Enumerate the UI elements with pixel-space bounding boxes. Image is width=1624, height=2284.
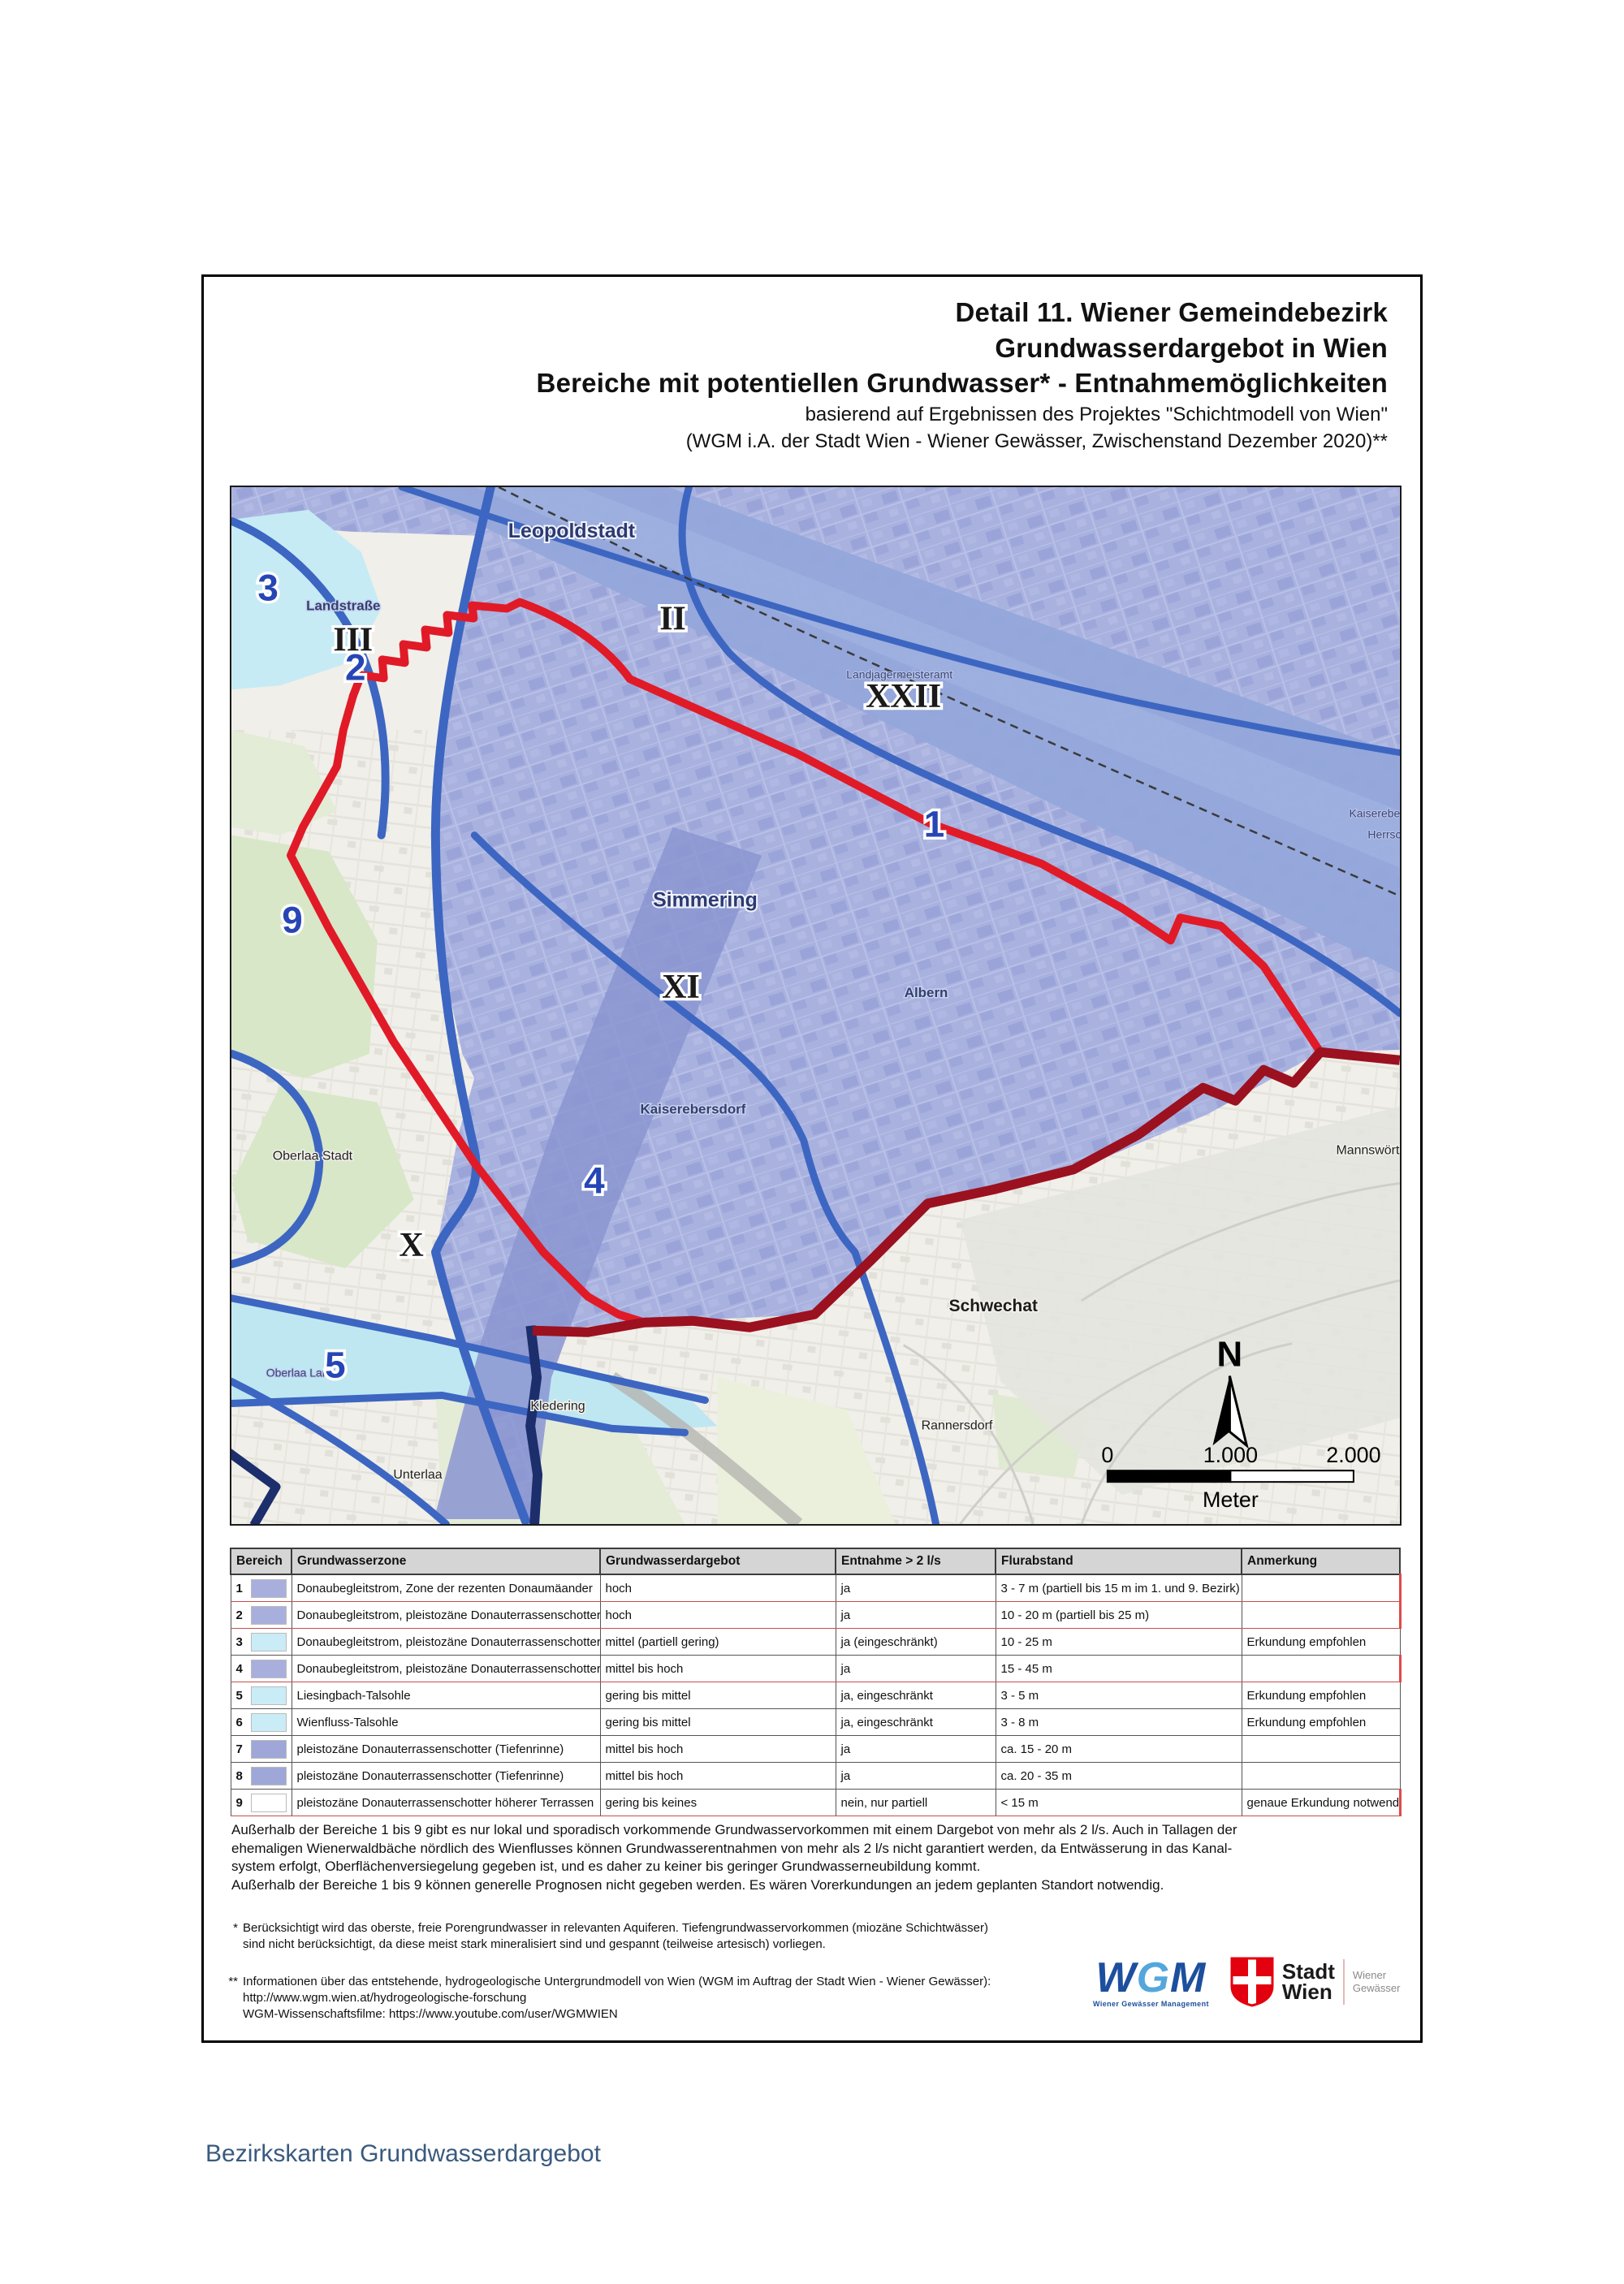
cell-grundwasserdargebot: hoch — [600, 1602, 836, 1629]
zone-number: 2 — [236, 1608, 245, 1622]
map-zone-number-1: 1 — [924, 803, 945, 845]
zone-number: 5 — [236, 1689, 245, 1703]
subtitle-line-1: basierend auf Ergebnissen des Projektes … — [316, 401, 1388, 429]
cell-entnahme: ja — [836, 1763, 996, 1790]
map-label-leopoldstadt: Leopoldstadt — [508, 520, 635, 542]
cell-anmerkung — [1242, 1656, 1400, 1682]
cell-entnahme: ja — [836, 1574, 996, 1602]
zone-color-swatch — [251, 1686, 286, 1705]
wgm-letter-m: M — [1170, 1954, 1206, 2001]
cell-flurabstand: 3 - 8 m — [996, 1709, 1242, 1736]
map-label-kaiserebersdorf: Kaiserebersdorf — [641, 1102, 746, 1117]
cell-bereich: 4 — [231, 1656, 292, 1682]
col-header-entnahme: Entnahme > 2 l/s — [836, 1548, 996, 1574]
map-label-unterlaa: Unterlaa — [393, 1468, 442, 1482]
cell-bereich: 1 — [231, 1574, 292, 1602]
cell-grundwasserzone: Donaubegleitstrom, Zone der rezenten Don… — [292, 1574, 600, 1602]
col-header-flurabstand: Flurabstand — [996, 1548, 1242, 1574]
cell-grundwasserzone: pleistozäne Donauterrassenschotter (Tief… — [292, 1736, 600, 1763]
cell-entnahme: nein, nur partiell — [836, 1790, 996, 1816]
zone-color-swatch — [251, 1633, 286, 1651]
cell-anmerkung: Erkundung empfohlen — [1242, 1709, 1400, 1736]
map-zone-number-9: 9 — [282, 898, 303, 940]
stadt-wien-line2: Wien — [1282, 1982, 1335, 2002]
title-line-3: Bereiche mit potentiellen Grundwasser* -… — [316, 365, 1388, 401]
table-row: 5 Liesingbach-Talsohle gering bis mittel… — [231, 1682, 1400, 1709]
cell-anmerkung — [1242, 1763, 1400, 1790]
cell-grundwasserzone: Donaubegleitstrom, pleistozäne Donauterr… — [292, 1656, 600, 1682]
wgm-letter-g: G — [1137, 1954, 1170, 2001]
map-label-oberlaa-stadt: Oberlaa Stadt — [273, 1149, 353, 1163]
cell-flurabstand: 10 - 25 m — [996, 1629, 1242, 1656]
cell-entnahme: ja — [836, 1602, 996, 1629]
cell-bereich: 5 — [231, 1682, 292, 1709]
zone-number: 4 — [236, 1662, 245, 1676]
zone-number: 3 — [236, 1635, 245, 1649]
cell-bereich: 7 — [231, 1736, 292, 1763]
cell-grundwasserzone: pleistozäne Donauterrassenschotter (Tief… — [292, 1763, 600, 1790]
zone-color-swatch — [251, 1606, 286, 1625]
body-note: Außerhalb der Bereiche 1 bis 9 gibt es n… — [231, 1821, 1394, 1894]
scale-tick-2000: 2.000 — [1326, 1443, 1380, 1467]
title-block: Detail 11. Wiener Gemeindebezirk Grundwa… — [316, 295, 1388, 456]
groundwater-zone-table: Bereich Grundwasserzone Grundwasserdarge… — [230, 1548, 1402, 1816]
footnote-1-mark: * — [217, 1920, 238, 1953]
table-row: 1 Donaubegleitstrom, Zone der rezenten D… — [231, 1574, 1400, 1602]
zone-number: 7 — [236, 1742, 245, 1756]
cell-flurabstand: 10 - 20 m (partiell bis 25 m) — [996, 1602, 1242, 1629]
north-label: N — [1217, 1335, 1243, 1375]
cell-flurabstand: ca. 15 - 20 m — [996, 1736, 1242, 1763]
col-header-grundwasserzone: Grundwasserzone — [292, 1548, 600, 1574]
cell-entnahme: ja (eingeschränkt) — [836, 1629, 996, 1656]
map-label-district-XI: XI — [662, 969, 700, 1006]
page-caption: Bezirkskarten Grundwasserdargebot — [205, 2140, 601, 2168]
footnote-1: * Berücksichtigt wird das oberste, freie… — [217, 1920, 1069, 1953]
map: Leopoldstadt Landstraße Simmering Albern… — [230, 486, 1402, 1526]
cell-grundwasserdargebot: mittel bis hoch — [600, 1763, 836, 1790]
cell-anmerkung — [1242, 1574, 1400, 1602]
map-zone-number-2: 2 — [345, 645, 366, 688]
cell-grundwasserdargebot: gering bis mittel — [600, 1682, 836, 1709]
zone-color-swatch — [251, 1740, 286, 1759]
scale-tick-1000: 1.000 — [1203, 1443, 1258, 1467]
cell-entnahme: ja, eingeschränkt — [836, 1709, 996, 1736]
map-label-landstrasse: Landstraße — [306, 598, 380, 614]
cell-grundwasserdargebot: mittel bis hoch — [600, 1736, 836, 1763]
zone-color-swatch — [251, 1767, 286, 1785]
table-row: 2 Donaubegleitstrom, pleistozäne Donaute… — [231, 1602, 1400, 1629]
document-frame: Detail 11. Wiener Gemeindebezirk Grundwa… — [201, 274, 1423, 2043]
table-row: 7 pleistozäne Donauterrassenschotter (Ti… — [231, 1736, 1400, 1763]
title-line-1: Detail 11. Wiener Gemeindebezirk — [316, 295, 1388, 330]
footnote-1-text: Berücksichtigt wird das oberste, freie P… — [243, 1920, 988, 1953]
table-row: 4 Donaubegleitstrom, pleistozäne Donaute… — [231, 1656, 1400, 1682]
table-body: 1 Donaubegleitstrom, Zone der rezenten D… — [231, 1574, 1400, 1816]
zone-number: 1 — [236, 1582, 245, 1595]
cell-grundwasserzone: pleistozäne Donauterrassenschotter höher… — [292, 1790, 600, 1816]
map-label-herrsch-clipped: Herrsch — [1367, 828, 1400, 841]
cell-bereich: 6 — [231, 1709, 292, 1736]
wgm-letter-w: W — [1096, 1954, 1137, 2001]
cell-anmerkung — [1242, 1736, 1400, 1763]
map-label-kaiserebe-clipped: Kaiserebe — [1349, 807, 1400, 820]
cell-grundwasserdargebot: mittel bis hoch — [600, 1656, 836, 1682]
table-row: 9 pleistozäne Donauterrassenschotter höh… — [231, 1790, 1400, 1816]
cell-flurabstand: 3 - 5 m — [996, 1682, 1242, 1709]
stadt-wien-logo: Stadt Wien Wiener Gewässer — [1230, 1957, 1401, 2007]
title-line-2: Grundwasserdargebot in Wien — [316, 330, 1388, 366]
col-header-bereich: Bereich — [231, 1548, 292, 1574]
table-row: 8 pleistozäne Donauterrassenschotter (Ti… — [231, 1763, 1400, 1790]
footnote-2: ** Informationen über das entstehende, h… — [217, 1974, 1069, 2023]
subtitle-line-2: (WGM i.A. der Stadt Wien - Wiener Gewäss… — [316, 428, 1388, 456]
footnote-2-text: Informationen über das entstehende, hydr… — [243, 1974, 991, 2023]
map-label-mannswoerth: Mannswörth — [1336, 1143, 1400, 1157]
col-header-anmerkung: Anmerkung — [1242, 1548, 1400, 1574]
table-header-row: Bereich Grundwasserzone Grundwasserdarge… — [231, 1548, 1400, 1574]
table-row: 6 Wienfluss-Talsohle gering bis mittel j… — [231, 1709, 1400, 1736]
zone-color-swatch — [251, 1794, 286, 1812]
map-zone-number-4: 4 — [584, 1159, 605, 1201]
map-label-rannersdorf: Rannersdorf — [922, 1418, 993, 1432]
cell-grundwasserdargebot: mittel (partiell gering) — [600, 1629, 836, 1656]
cell-anmerkung: genaue Erkundung notwendig — [1242, 1790, 1400, 1816]
cell-grundwasserzone: Donaubegleitstrom, pleistozäne Donauterr… — [292, 1602, 600, 1629]
table-row: 3 Donaubegleitstrom, pleistozäne Donaute… — [231, 1629, 1400, 1656]
zone-number: 8 — [236, 1769, 245, 1783]
zone-color-swatch — [251, 1579, 286, 1598]
col-header-grundwasserdargebot: Grundwasserdargebot — [600, 1548, 836, 1574]
cell-grundwasserzone: Wienfluss-Talsohle — [292, 1709, 600, 1736]
scale-unit: Meter — [1203, 1487, 1259, 1512]
map-label-district-X: X — [399, 1227, 423, 1264]
map-zone-number-5: 5 — [325, 1344, 346, 1386]
cell-anmerkung: Erkundung empfohlen — [1242, 1629, 1400, 1656]
zone-number: 9 — [236, 1796, 245, 1810]
cell-grundwasserdargebot: gering bis mittel — [600, 1709, 836, 1736]
footnote-2-mark: ** — [217, 1974, 238, 2023]
map-label-albern: Albern — [905, 985, 948, 1000]
cell-grundwasserdargebot: gering bis keines — [600, 1790, 836, 1816]
map-label-kledering: Kledering — [530, 1399, 585, 1413]
scale-tick-0: 0 — [1101, 1443, 1113, 1467]
cell-bereich: 3 — [231, 1629, 292, 1656]
cell-flurabstand: 15 - 45 m — [996, 1656, 1242, 1682]
cell-anmerkung: Erkundung empfohlen — [1242, 1682, 1400, 1709]
cell-entnahme: ja — [836, 1656, 996, 1682]
zone-number: 6 — [236, 1716, 245, 1729]
map-label-district-XXII: XXII — [866, 678, 941, 715]
cell-grundwasserzone: Donaubegleitstrom, pleistozäne Donauterr… — [292, 1629, 600, 1656]
page: Detail 11. Wiener Gemeindebezirk Grundwa… — [0, 0, 1624, 2284]
map-label-district-II: II — [659, 600, 686, 637]
cell-grundwasserdargebot: hoch — [600, 1574, 836, 1602]
map-canvas: Leopoldstadt Landstraße Simmering Albern… — [231, 487, 1400, 1524]
stadt-wien-shield-icon — [1230, 1957, 1274, 2007]
wiener-gewaesser-line2: Gewässer — [1353, 1982, 1401, 1995]
logo-area: WGM Wiener Gewässer Management Stadt Wie… — [1093, 1945, 1402, 2018]
cell-bereich: 8 — [231, 1763, 292, 1790]
cell-flurabstand: 3 - 7 m (partiell bis 15 m im 1. und 9. … — [996, 1574, 1242, 1602]
cell-entnahme: ja, eingeschränkt — [836, 1682, 996, 1709]
wgm-logo: WGM Wiener Gewässer Management — [1093, 1957, 1209, 2008]
wgm-subtitle: Wiener Gewässer Management — [1093, 2001, 1209, 2008]
cell-anmerkung — [1242, 1602, 1400, 1629]
cell-flurabstand: < 15 m — [996, 1790, 1242, 1816]
cell-grundwasserzone: Liesingbach-Talsohle — [292, 1682, 600, 1709]
cell-entnahme: ja — [836, 1736, 996, 1763]
map-label-simmering: Simmering — [653, 888, 758, 911]
cell-bereich: 9 — [231, 1790, 292, 1816]
logo-divider — [1343, 1959, 1345, 2005]
zone-color-swatch — [251, 1713, 286, 1732]
wiener-gewaesser-line1: Wiener — [1353, 1969, 1401, 1982]
zone-color-swatch — [251, 1660, 286, 1678]
map-zone-number-3: 3 — [257, 567, 279, 609]
cell-bereich: 2 — [231, 1602, 292, 1629]
map-label-schwechat: Schwechat — [949, 1297, 1038, 1315]
cell-flurabstand: ca. 20 - 35 m — [996, 1763, 1242, 1790]
